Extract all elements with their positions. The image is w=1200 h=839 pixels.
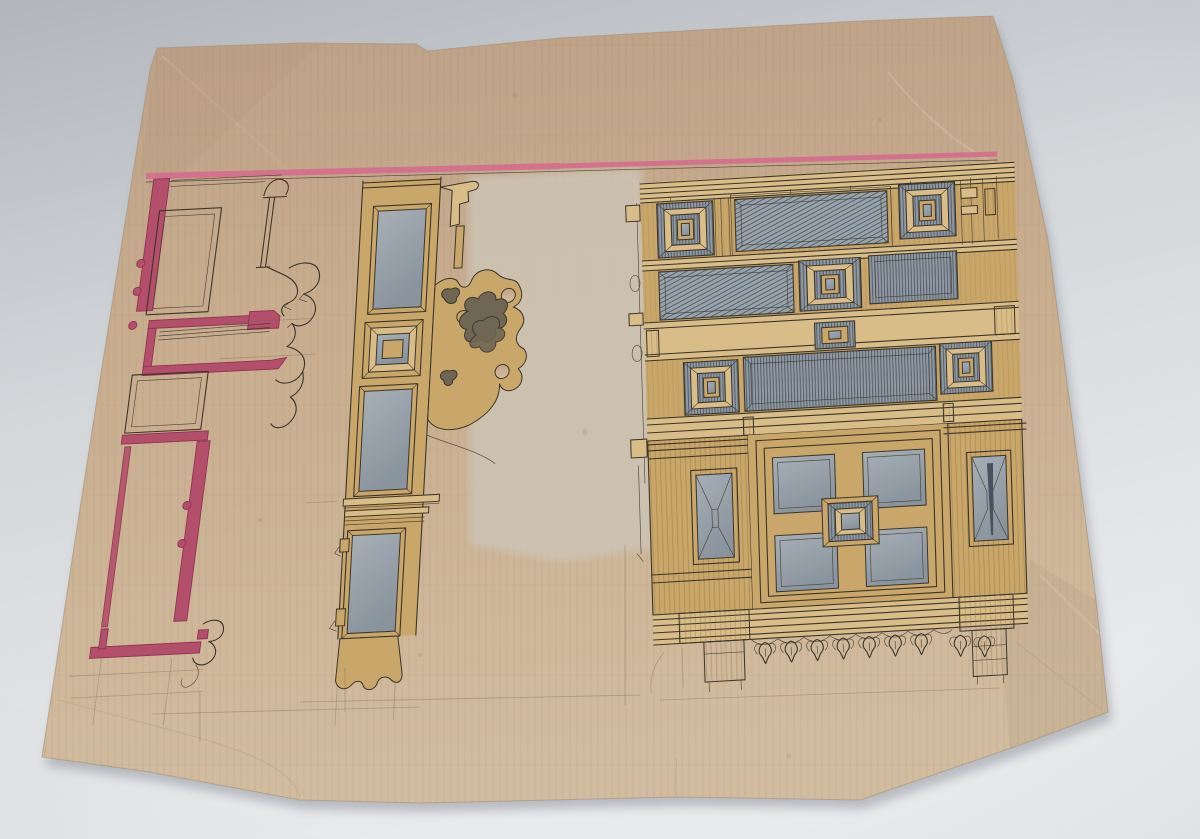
photo-vignette — [0, 0, 1200, 839]
drawing-photo — [0, 0, 1200, 839]
photograph-canvas — [0, 0, 1200, 839]
